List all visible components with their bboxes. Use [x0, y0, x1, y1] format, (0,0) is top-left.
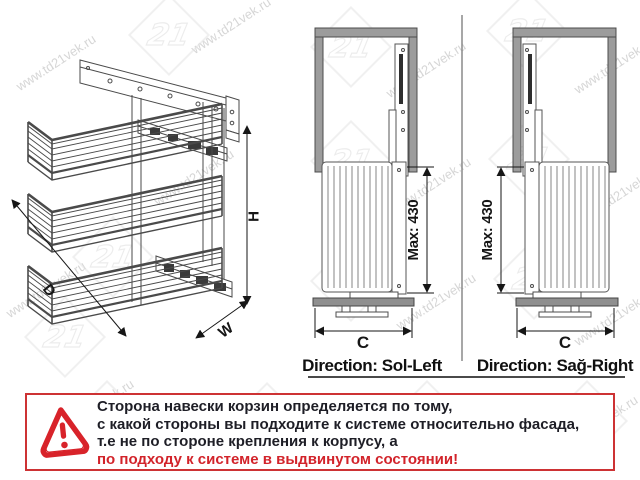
warning-line-1: Сторона навески корзин определяется по т…: [97, 398, 602, 416]
warning-line-2: с какой стороны вы подходите к системе о…: [97, 416, 602, 434]
warning-triangle-icon: [36, 404, 91, 459]
direction-label-right: Direction: Sağ-Right: [470, 356, 640, 376]
catalog-diagram-page: www.td21vek.ruwww.td21vek.ruwww.td21vek.…: [0, 0, 640, 480]
front-view-sag-right: [497, 28, 618, 338]
warning-box: Сторона навески корзин определяется по т…: [25, 393, 615, 471]
technical-drawing: [0, 0, 640, 390]
wire-basket-tier-2: [28, 176, 222, 252]
direction-label-left: Direction: Sol-Left: [287, 356, 457, 376]
max-height-dimension-left: Max: 430: [405, 185, 423, 275]
warning-text: Сторона навески корзин определяется по т…: [97, 398, 602, 468]
front-view-sol-left: [313, 28, 434, 338]
warning-line-4: по подходу к системе в выдвинутом состоя…: [97, 451, 602, 469]
width-dimension-right: C: [535, 333, 595, 353]
warning-line-3: т.е не по стороне крепления к корпусу, а: [97, 433, 602, 451]
max-height-dimension-right: Max: 430: [479, 185, 497, 275]
iso-height-label: H: [246, 206, 263, 228]
width-dimension-left: C: [333, 333, 393, 353]
